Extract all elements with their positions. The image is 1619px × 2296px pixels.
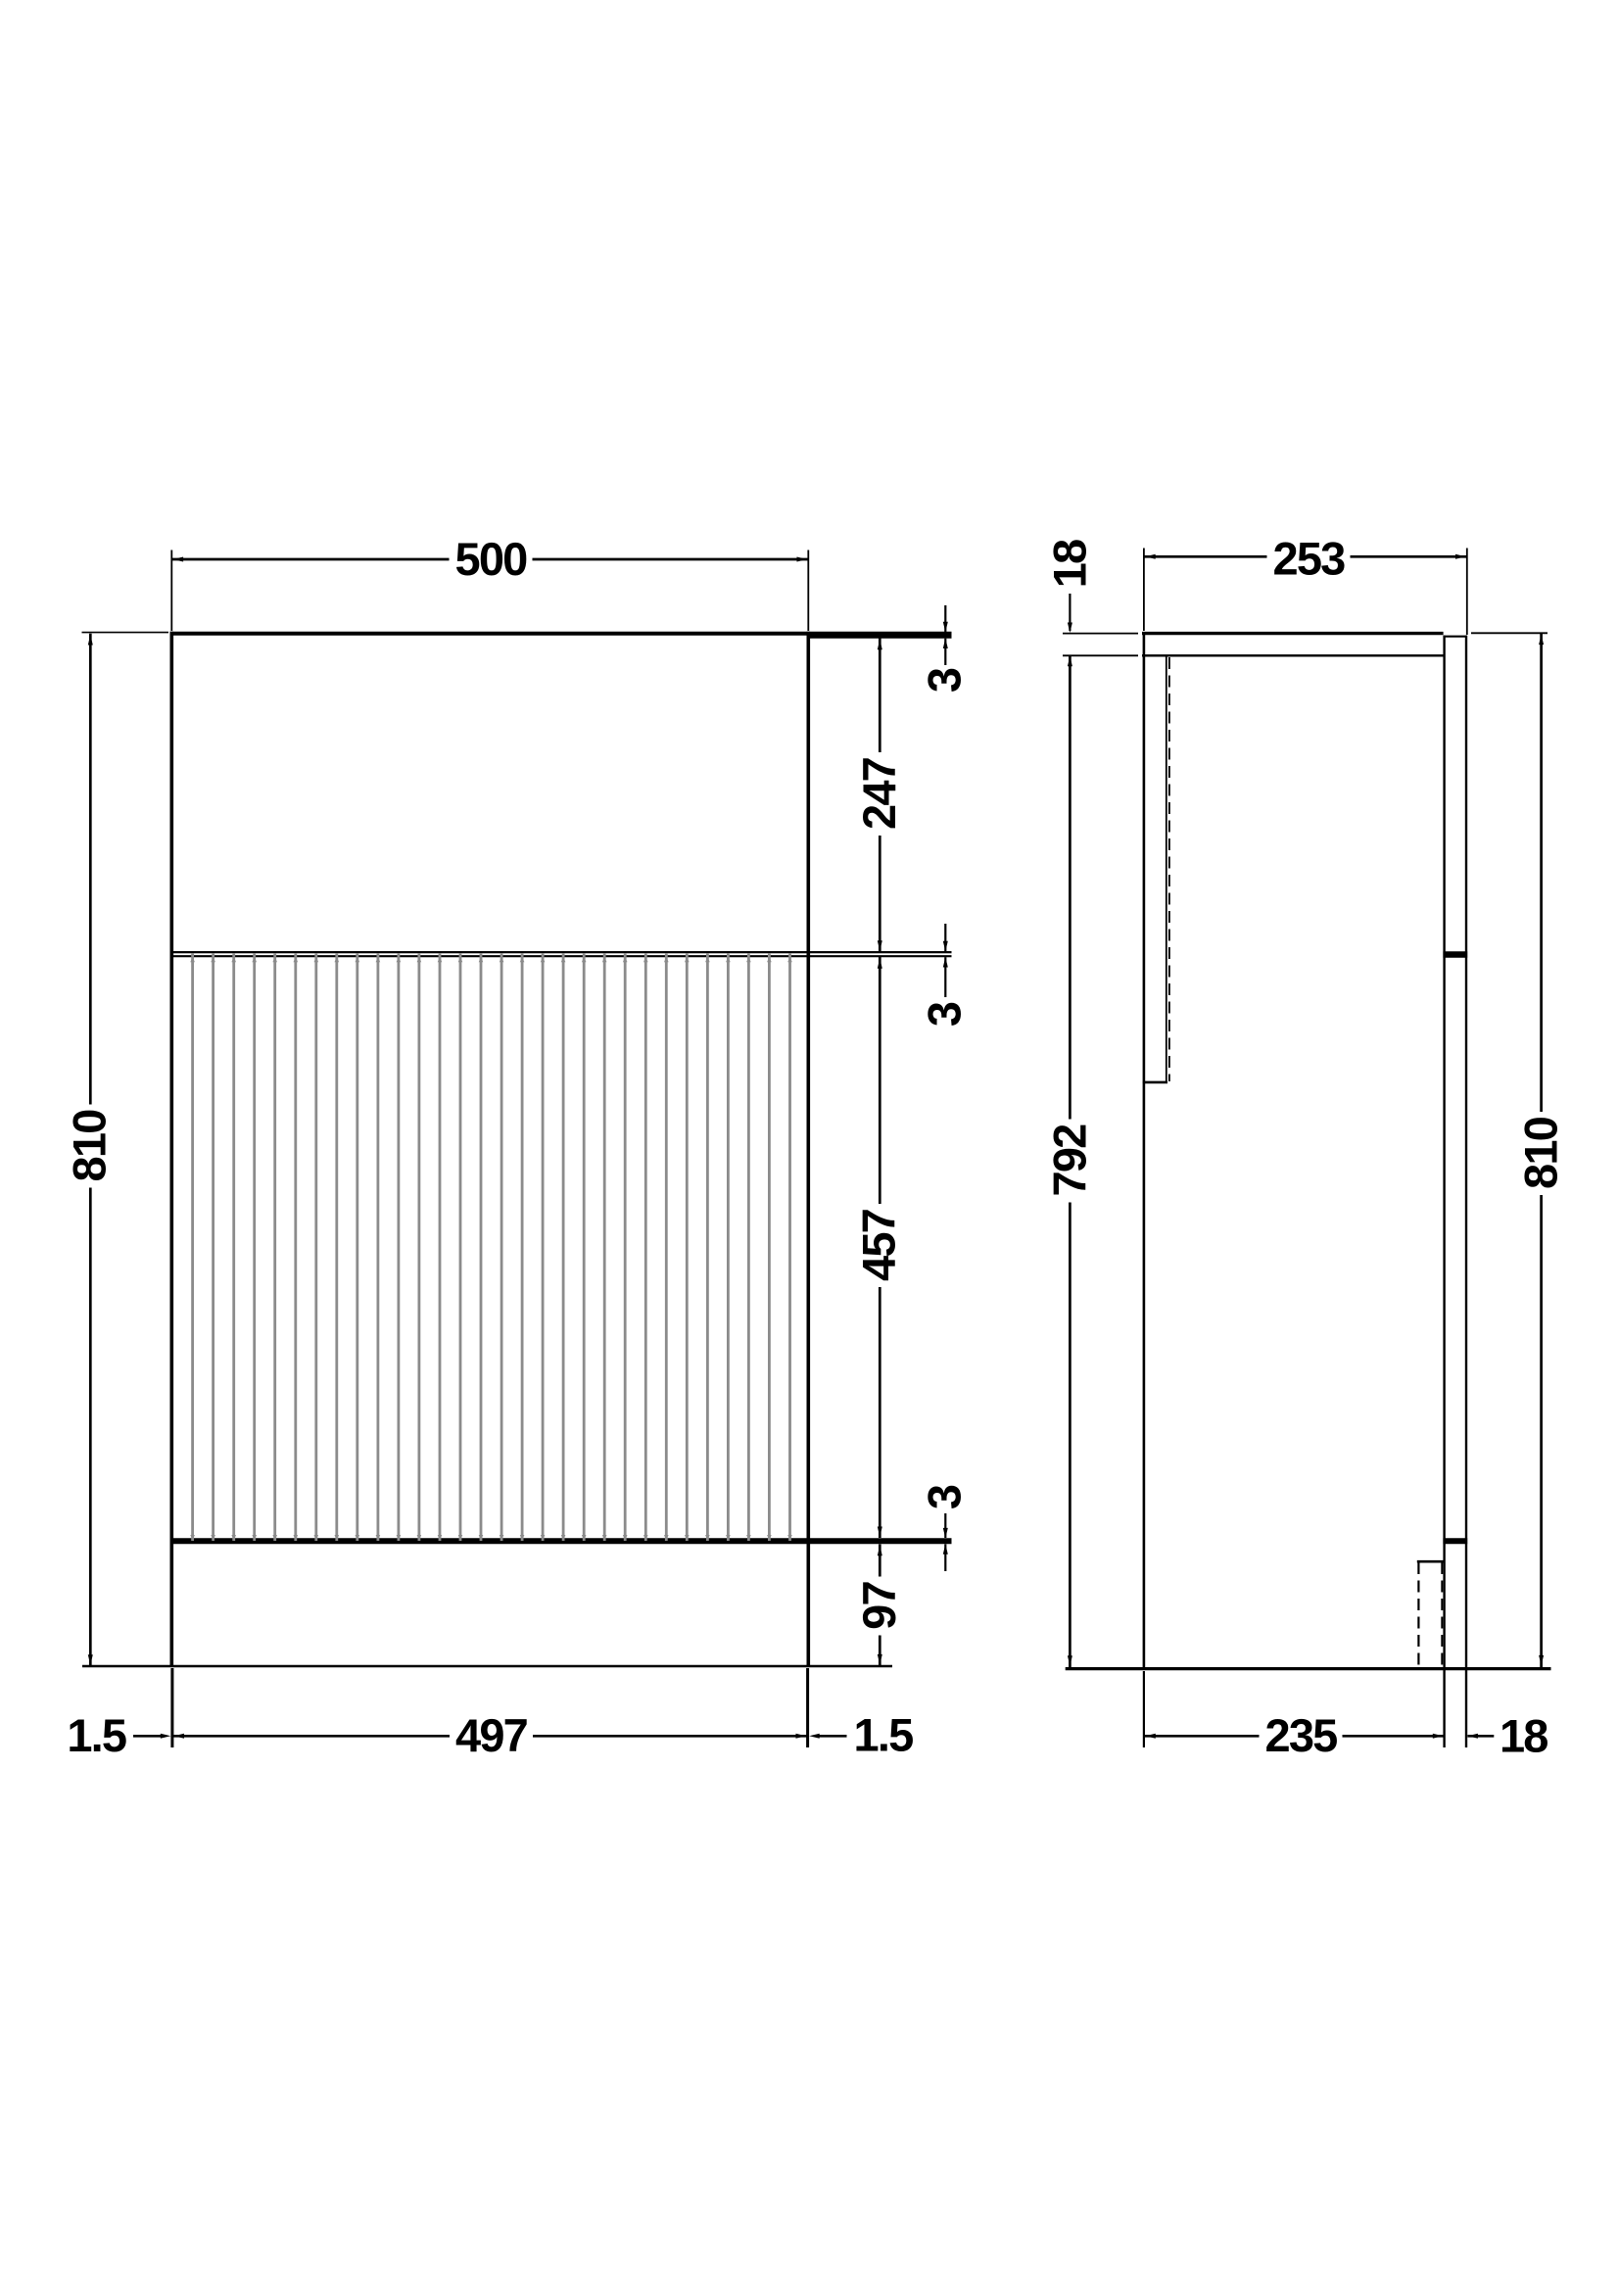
svg-text:235: 235: [1264, 1709, 1337, 1761]
svg-text:3: 3: [919, 668, 971, 693]
svg-text:497: 497: [455, 1709, 528, 1761]
svg-text:18: 18: [1500, 1710, 1548, 1762]
svg-text:97: 97: [853, 1582, 905, 1630]
svg-text:810: 810: [64, 1110, 116, 1182]
svg-text:3: 3: [918, 1485, 970, 1509]
svg-text:457: 457: [853, 1209, 905, 1281]
svg-text:247: 247: [853, 757, 905, 830]
svg-text:1.5: 1.5: [854, 1709, 914, 1761]
svg-text:253: 253: [1272, 533, 1345, 585]
svg-text:500: 500: [454, 533, 527, 585]
svg-text:1.5: 1.5: [67, 1709, 126, 1761]
svg-text:18: 18: [1044, 540, 1096, 588]
svg-text:3: 3: [918, 1002, 970, 1027]
svg-text:810: 810: [1515, 1117, 1567, 1189]
svg-text:792: 792: [1044, 1124, 1096, 1197]
